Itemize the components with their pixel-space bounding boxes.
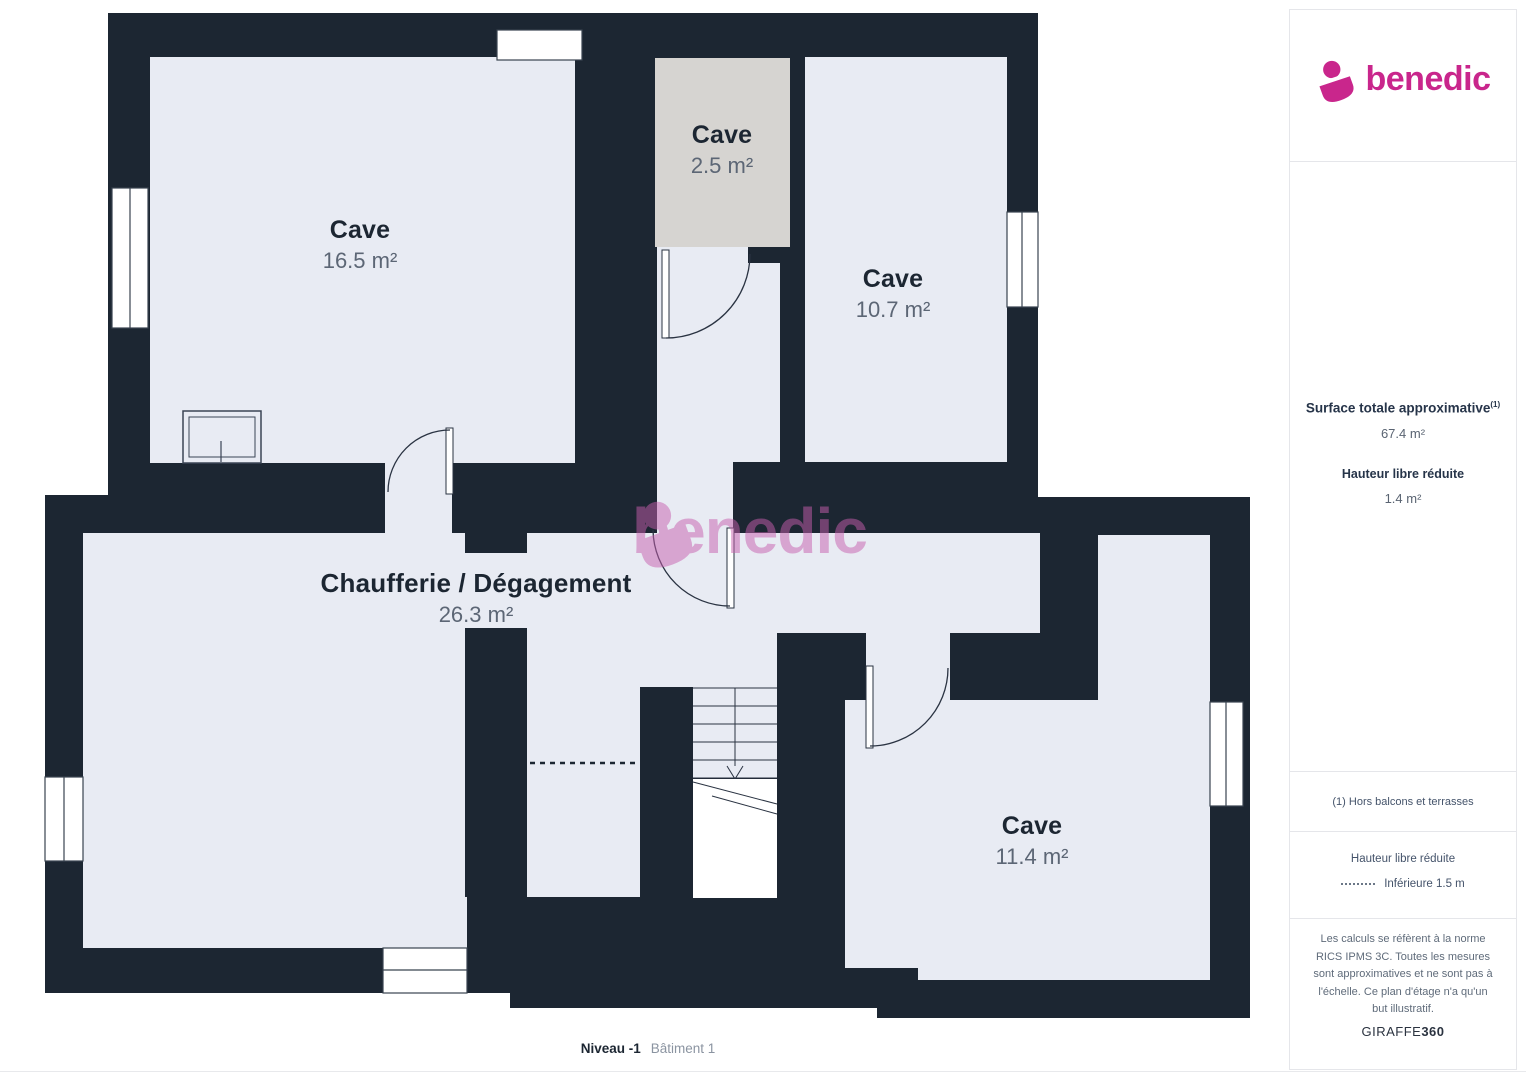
- room-cave-25-floor-reduced-height: [655, 58, 790, 247]
- legend-value: Inférieure 1.5 m: [1384, 878, 1465, 890]
- building-label: Bâtiment 1: [651, 1041, 716, 1056]
- divider: [1290, 918, 1516, 919]
- brand-logo: benedic: [1290, 58, 1516, 104]
- level-label: Niveau -1: [581, 1041, 641, 1056]
- chaufferie-floor: [83, 533, 467, 948]
- room-cave-165-floor: [150, 57, 575, 463]
- info-sidebar: benedic Surface totale approximative(1) …: [1289, 9, 1517, 1070]
- disclaimer-text: Les calculs se réfèrent à la norme RICS …: [1290, 931, 1516, 1019]
- legend: Hauteur libre réduite Inférieure 1.5 m: [1290, 853, 1516, 890]
- giraffe360-credit: GIRAFFE360: [1290, 1024, 1516, 1039]
- floor-plan-page: Cave 16.5 m² Cave 2.5 m² Cave 10.7 m² Ch…: [0, 0, 1526, 1079]
- stair-break-area: [693, 779, 777, 898]
- floor-plan-svg: [0, 0, 1288, 1079]
- surface-total-value: 67.4 m²: [1290, 426, 1516, 441]
- bottom-divider: [0, 1071, 1526, 1072]
- window-top-cave-165: [497, 30, 582, 60]
- brand-name: benedic: [1366, 60, 1491, 103]
- benedic-heart-icon: [1316, 58, 1356, 104]
- room-cave-114-floor: [845, 700, 1210, 980]
- plan-footer: Niveau -1Bâtiment 1: [581, 1041, 716, 1056]
- door-opening-cave-165: [385, 461, 452, 535]
- divider: [1290, 161, 1516, 162]
- divider: [1290, 771, 1516, 772]
- reduced-height-dash-swatch: [1341, 883, 1375, 885]
- divider: [1290, 831, 1516, 832]
- door-opening-cave-114: [866, 633, 950, 702]
- hall-strip-floor: [527, 633, 640, 897]
- floor-plan-canvas: Cave 16.5 m² Cave 2.5 m² Cave 10.7 m² Ch…: [0, 0, 1288, 1079]
- footnote: (1) Hors balcons et terrasses: [1290, 796, 1516, 808]
- room-cave-107-floor: [805, 57, 1007, 462]
- reduced-height-title: Hauteur libre réduite: [1290, 467, 1516, 481]
- surface-total-title: Surface totale approximative(1): [1290, 400, 1516, 416]
- reduced-height-value: 1.4 m²: [1290, 491, 1516, 506]
- room-cave-114-extension-floor: [1098, 535, 1210, 700]
- surface-summary: Surface totale approximative(1) 67.4 m² …: [1290, 400, 1516, 506]
- fixture-cave-165: [183, 411, 261, 463]
- legend-title: Hauteur libre réduite: [1290, 853, 1516, 865]
